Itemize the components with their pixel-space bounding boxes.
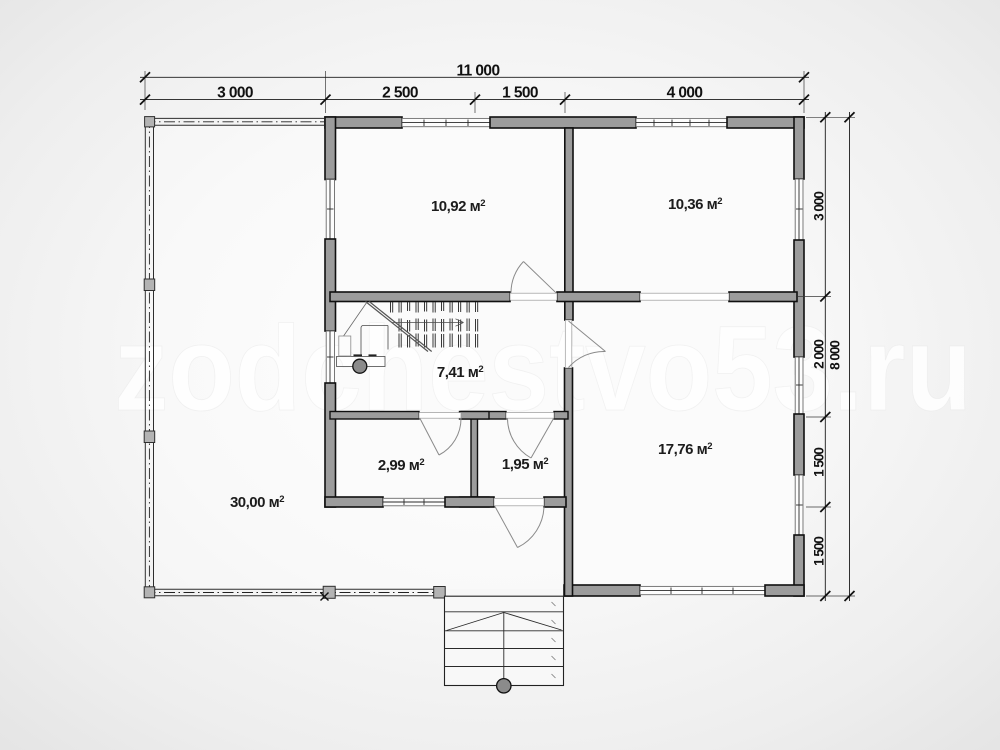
svg-text:8 000: 8 000 [828,341,843,370]
svg-text:10,92 м2: 10,92 м2 [431,198,485,215]
svg-text:1 500: 1 500 [812,537,827,566]
svg-text:2,99 м2: 2,99 м2 [378,457,424,474]
svg-text:4 000: 4 000 [667,85,703,102]
svg-text:7,41 м2: 7,41 м2 [437,364,483,381]
svg-text:3 000: 3 000 [812,192,827,221]
svg-text:17,76 м2: 17,76 м2 [658,441,712,458]
svg-text:3 000: 3 000 [217,85,253,102]
svg-text:30,00 м2: 30,00 м2 [230,494,284,511]
svg-text:2 000: 2 000 [812,340,827,369]
svg-text:1 500: 1 500 [812,448,827,477]
svg-text:10,36 м2: 10,36 м2 [668,196,722,213]
svg-text:11 000: 11 000 [457,63,500,80]
svg-text:1,95 м2: 1,95 м2 [502,456,548,473]
svg-text:1 500: 1 500 [502,85,538,102]
svg-text:2 500: 2 500 [382,85,418,102]
